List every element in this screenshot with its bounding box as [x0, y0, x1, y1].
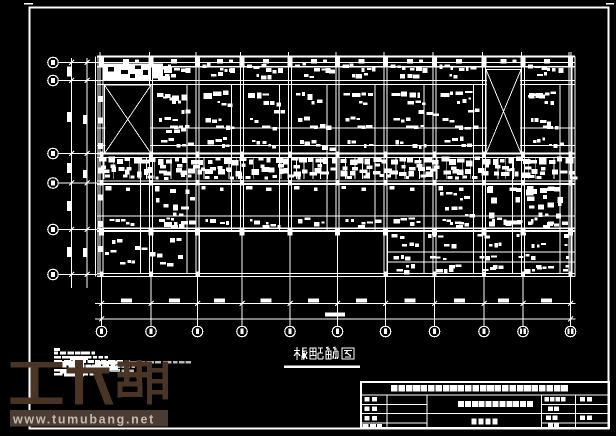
- svg-text:www.tumubang.net: www.tumubang.net: [12, 413, 155, 427]
